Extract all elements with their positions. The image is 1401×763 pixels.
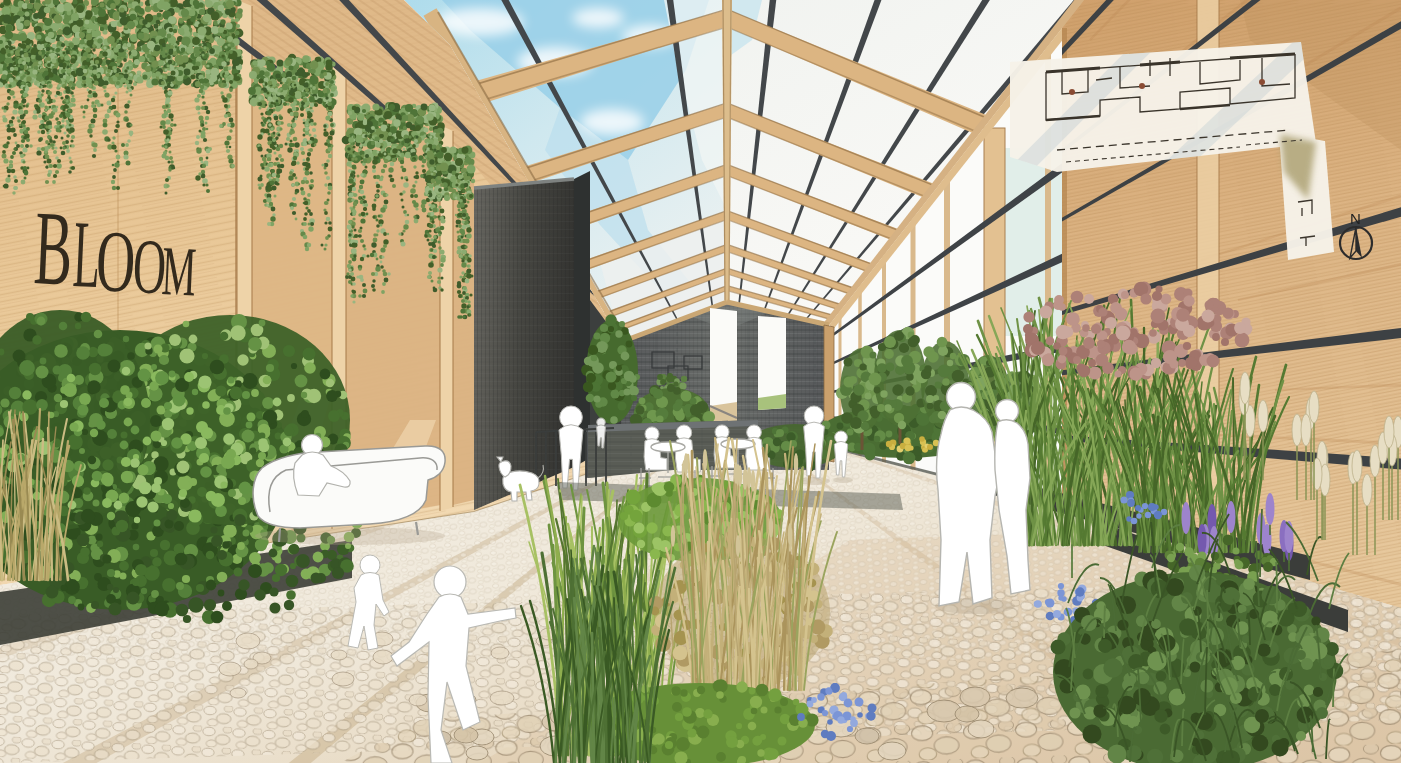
svg-text:B: B — [32, 189, 75, 308]
svg-text:N: N — [1350, 210, 1361, 227]
svg-text:M: M — [160, 232, 197, 310]
